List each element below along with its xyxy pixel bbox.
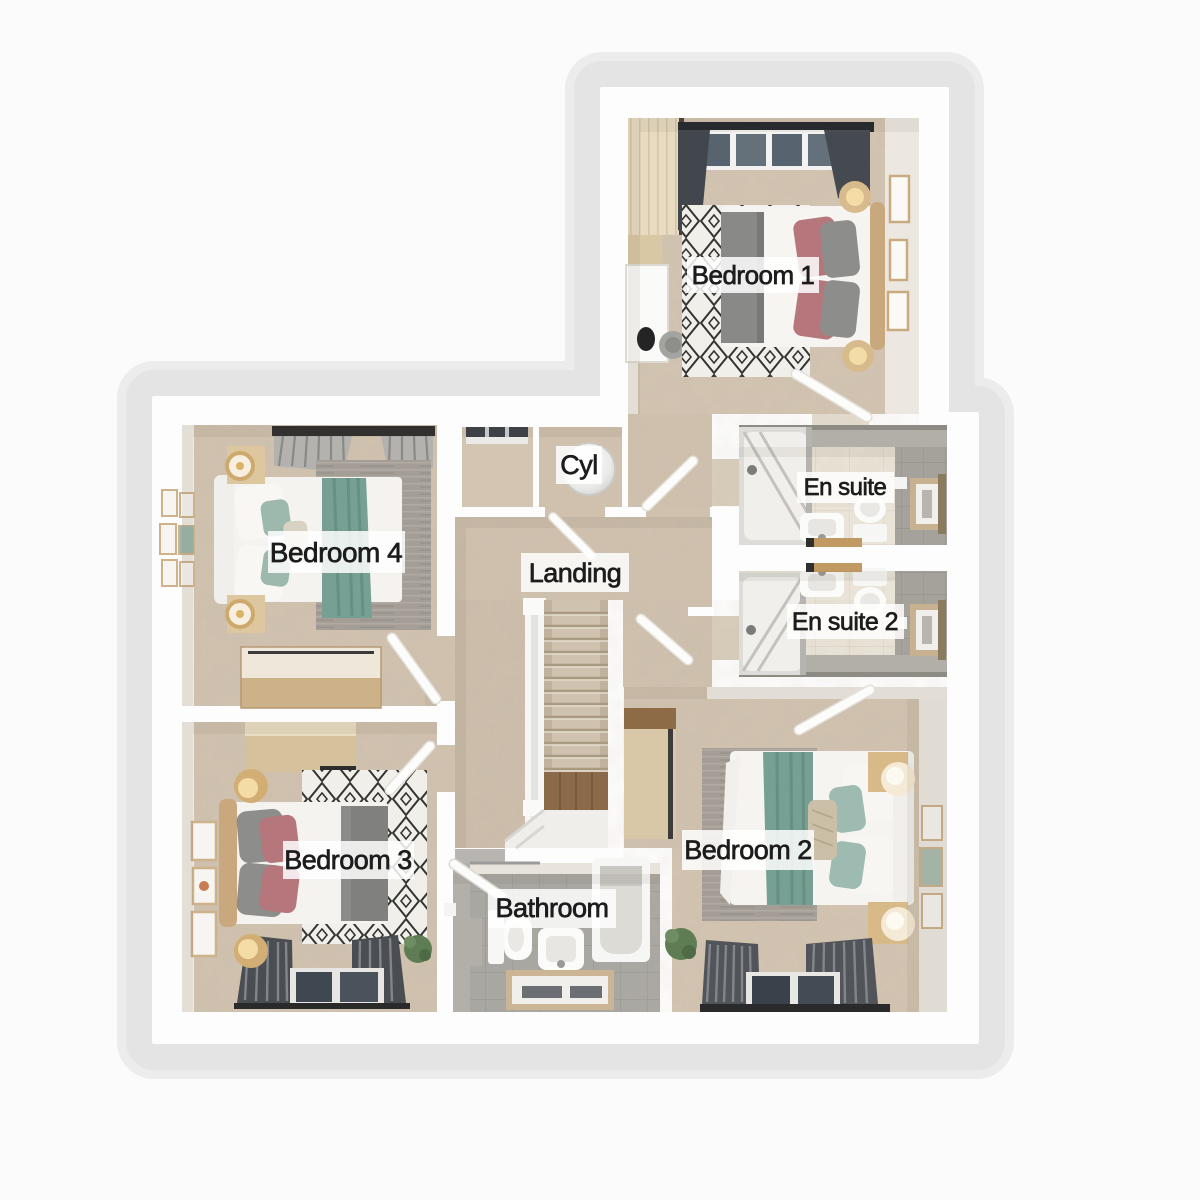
svg-text:Landing: Landing <box>529 558 622 588</box>
svg-text:Bedroom 2: Bedroom 2 <box>684 835 812 865</box>
svg-text:Bathroom: Bathroom <box>495 893 608 923</box>
svg-text:Cyl: Cyl <box>560 450 598 480</box>
svg-text:Bedroom 4: Bedroom 4 <box>270 537 402 568</box>
svg-text:Bedroom 3: Bedroom 3 <box>284 845 412 875</box>
svg-text:En suite: En suite <box>804 474 887 501</box>
svg-text:En suite 2: En suite 2 <box>792 608 898 636</box>
svg-text:Bedroom 1: Bedroom 1 <box>692 260 815 290</box>
